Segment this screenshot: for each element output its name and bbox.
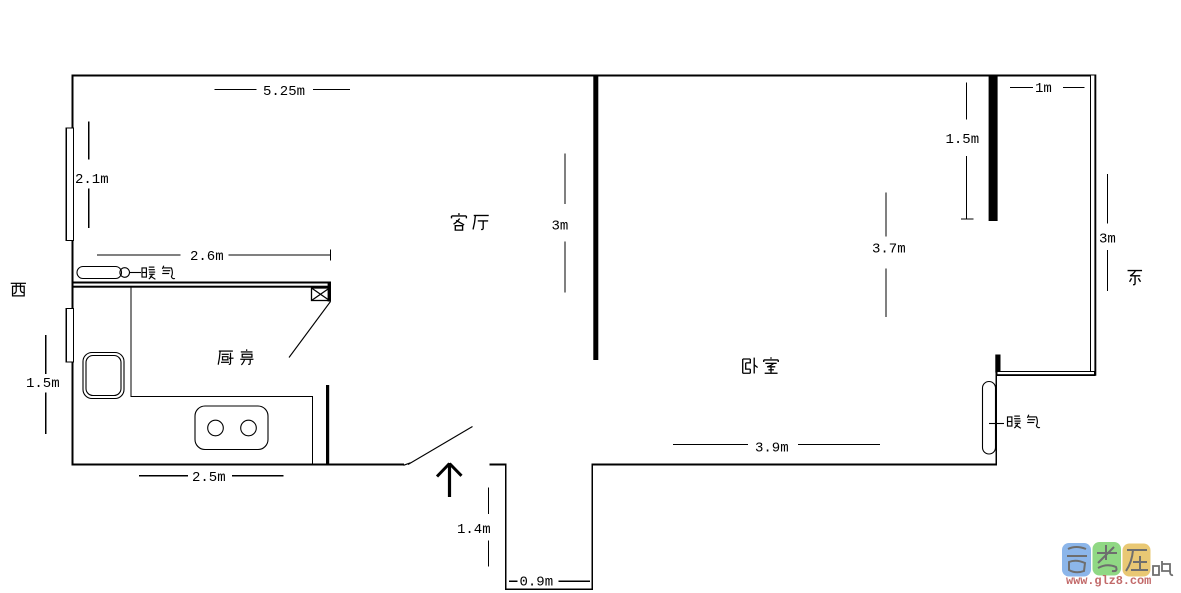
svg-text:1.5m: 1.5m <box>946 132 980 148</box>
svg-text:5.25m: 5.25m <box>263 84 305 100</box>
svg-text:3.9m: 3.9m <box>755 441 789 457</box>
svg-text:3m: 3m <box>552 219 569 235</box>
svg-text:2.6m: 2.6m <box>190 249 224 265</box>
svg-text:3m: 3m <box>1099 232 1116 248</box>
svg-text:1.4m: 1.4m <box>457 522 491 538</box>
svg-text:0.9m: 0.9m <box>520 575 554 591</box>
svg-text:2.5m: 2.5m <box>192 470 226 486</box>
svg-text:1m: 1m <box>1035 81 1052 97</box>
svg-text:1.5m: 1.5m <box>26 376 60 392</box>
svg-text:3.7m: 3.7m <box>872 242 906 258</box>
svg-text:www.glz8.com: www.glz8.com <box>1066 574 1151 588</box>
svg-text:2.1m: 2.1m <box>75 172 109 188</box>
